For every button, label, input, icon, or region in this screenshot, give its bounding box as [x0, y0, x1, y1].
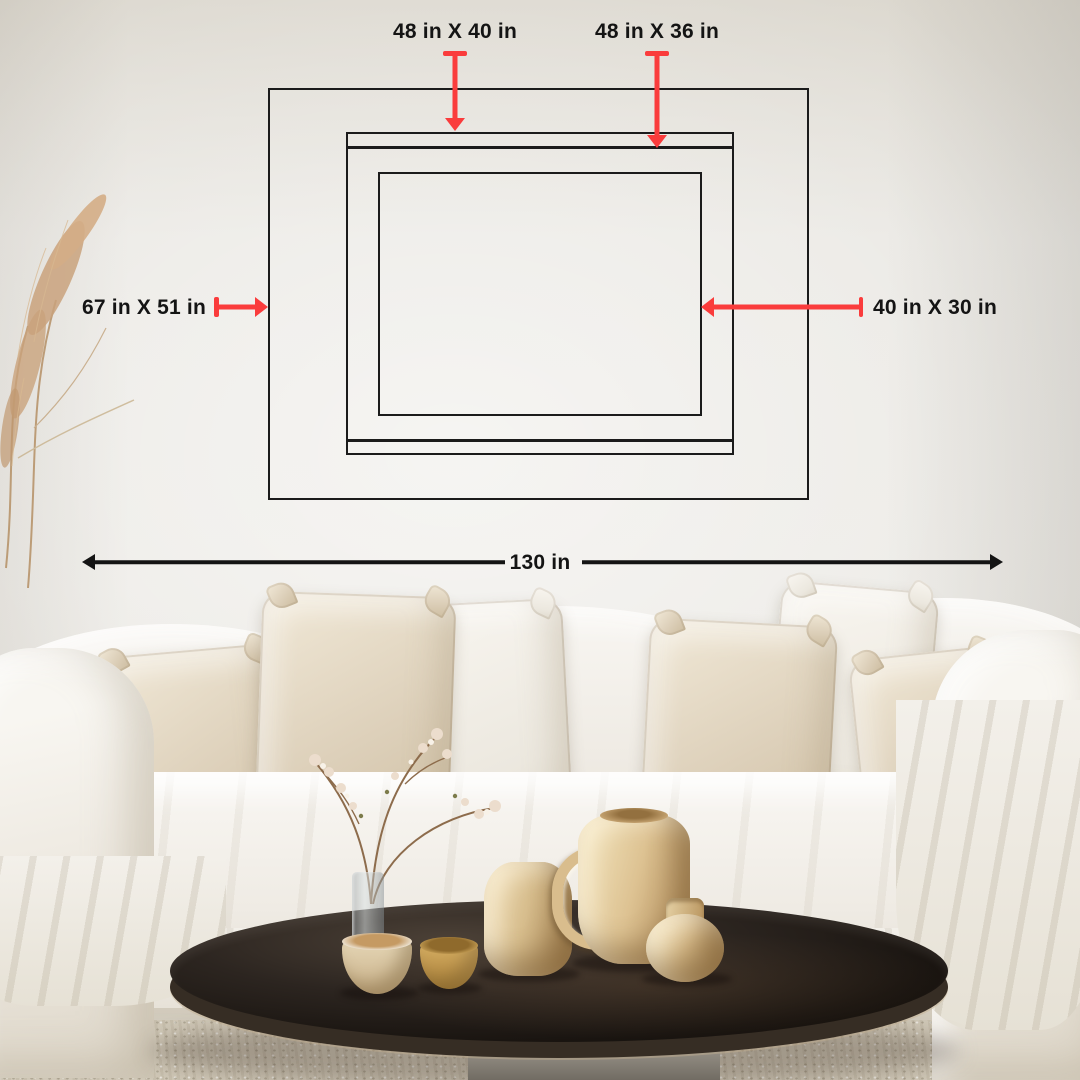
size-label-67x51: 67 in X 51 in — [78, 297, 210, 318]
size-label-48x40: 48 in X 40 in — [388, 21, 522, 42]
down-arrow-icon — [443, 51, 467, 131]
frame-inner-edge-bottom — [347, 439, 733, 442]
round-vase — [646, 914, 724, 982]
right-arrow-icon — [214, 297, 268, 317]
size-label-40x30: 40 in X 30 in — [866, 297, 1004, 318]
size-guide-image: 48 in X 40 in 48 in X 36 in 67 in X 51 i… — [0, 0, 1080, 1080]
down-arrow-icon — [645, 51, 669, 148]
frame-outline-40x30 — [378, 172, 702, 416]
width-arrow-left-icon — [82, 554, 505, 570]
frame-inner-edge-top — [347, 146, 733, 149]
left-arrow-icon — [701, 297, 863, 317]
pampas-grass — [0, 128, 144, 588]
size-label-48x36: 48 in X 36 in — [590, 21, 724, 42]
width-label-130in: 130 in — [498, 552, 582, 573]
width-arrow-right-icon — [582, 554, 1003, 570]
